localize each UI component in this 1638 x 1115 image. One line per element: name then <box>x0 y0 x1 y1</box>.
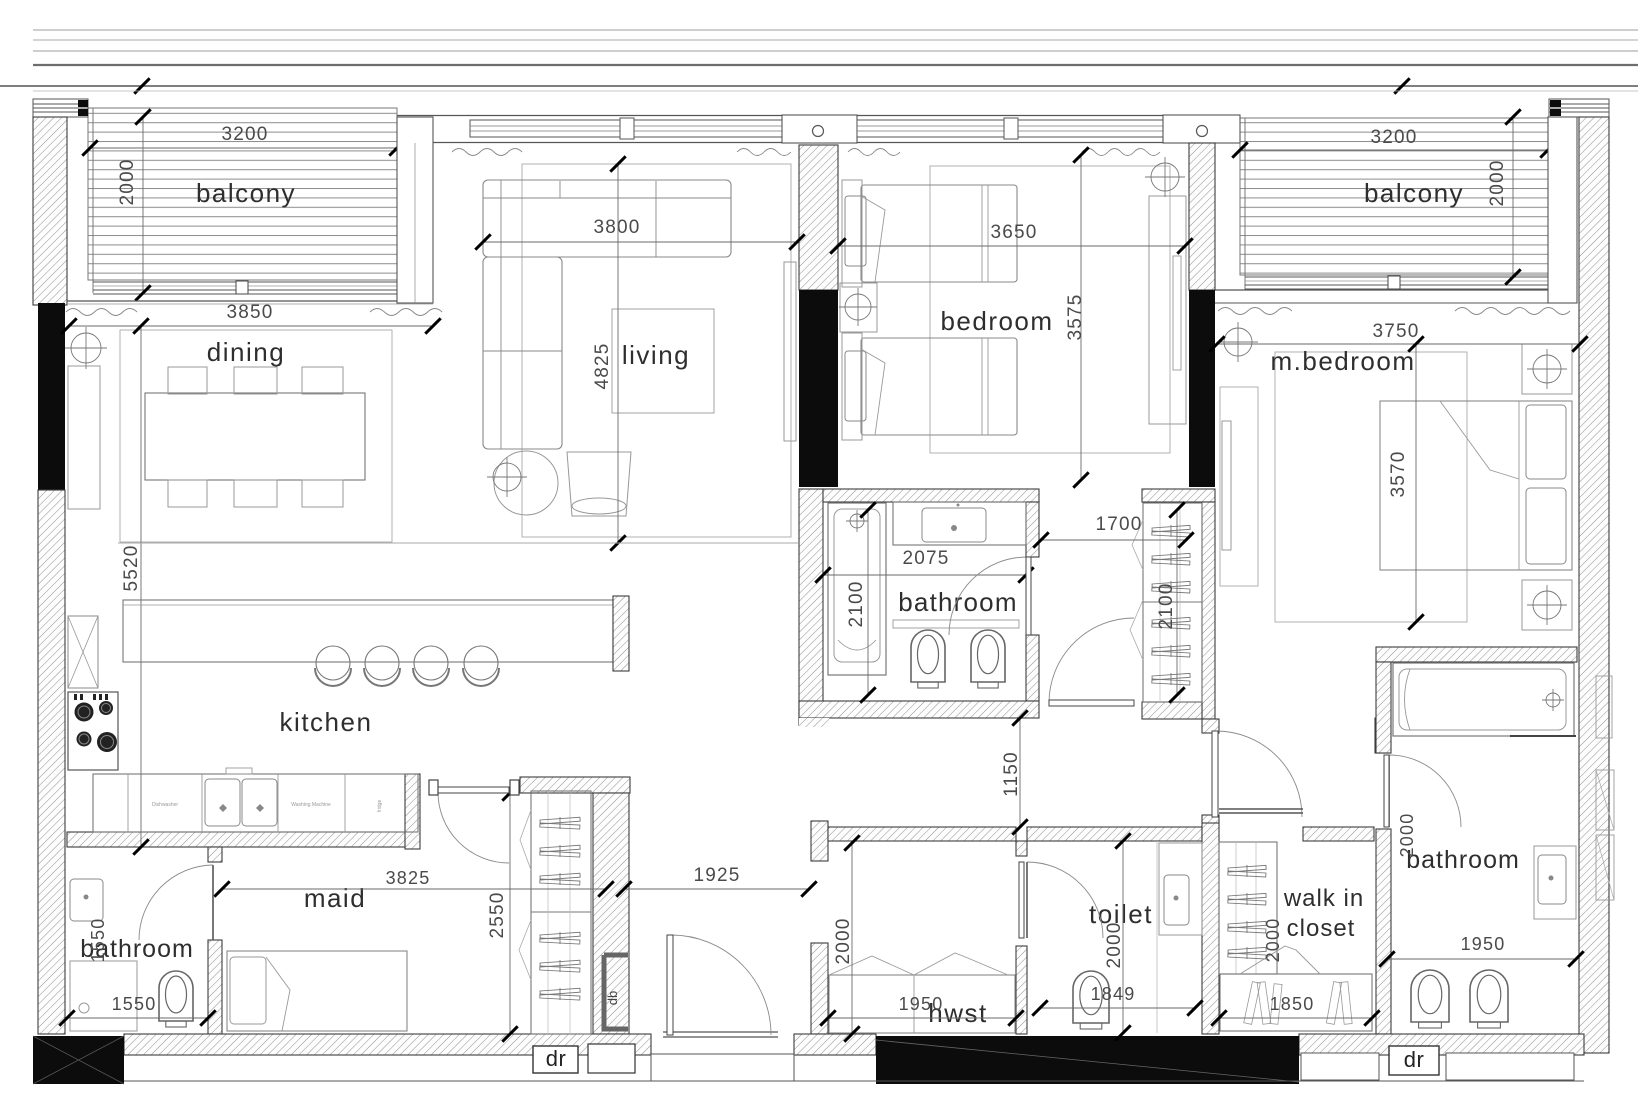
svg-text:3200: 3200 <box>221 124 268 145</box>
svg-text:3575: 3575 <box>1065 293 1086 340</box>
svg-text:1550: 1550 <box>88 918 108 963</box>
svg-text:bedroom: bedroom <box>940 306 1053 336</box>
svg-text:dr: dr <box>546 1046 567 1071</box>
svg-text:1950: 1950 <box>1461 934 1506 954</box>
svg-text:2000: 2000 <box>833 917 854 964</box>
svg-text:4825: 4825 <box>592 342 613 389</box>
svg-text:1950: 1950 <box>899 994 944 1014</box>
svg-text:3800: 3800 <box>593 217 640 238</box>
svg-text:3650: 3650 <box>990 222 1037 243</box>
svg-text:closet: closet <box>1287 915 1356 942</box>
svg-text:2000: 2000 <box>1263 918 1283 963</box>
svg-text:2000: 2000 <box>1104 921 1125 968</box>
svg-text:kitchen: kitchen <box>280 707 373 737</box>
svg-text:2100: 2100 <box>1156 582 1177 629</box>
svg-text:3825: 3825 <box>386 868 431 888</box>
svg-text:3750: 3750 <box>1372 321 1419 342</box>
svg-text:1849: 1849 <box>1091 984 1136 1004</box>
svg-text:fridge: fridge <box>377 800 383 813</box>
svg-text:2000: 2000 <box>1397 813 1417 858</box>
svg-text:2000: 2000 <box>117 158 138 205</box>
svg-text:5520: 5520 <box>121 544 142 591</box>
svg-text:db: db <box>605 991 620 1005</box>
svg-text:balcony: balcony <box>196 178 296 208</box>
svg-text:bathroom: bathroom <box>1406 846 1520 874</box>
svg-text:1150: 1150 <box>1001 751 1022 797</box>
svg-text:1925: 1925 <box>693 865 740 886</box>
svg-text:balcony: balcony <box>1364 178 1464 208</box>
svg-text:living: living <box>622 340 690 370</box>
svg-text:maid: maid <box>304 883 366 913</box>
svg-text:Dishwasher: Dishwasher <box>152 802 178 808</box>
svg-text:walk in: walk in <box>1283 885 1364 912</box>
svg-text:Washing Machine: Washing Machine <box>291 802 331 808</box>
svg-text:1550: 1550 <box>112 994 157 1014</box>
svg-text:2075: 2075 <box>902 548 949 569</box>
svg-text:3570: 3570 <box>1388 450 1409 497</box>
svg-text:1700: 1700 <box>1095 514 1142 535</box>
svg-text:2550: 2550 <box>487 891 508 938</box>
svg-text:3200: 3200 <box>1370 127 1417 148</box>
svg-text:dining: dining <box>207 337 285 367</box>
svg-text:dr: dr <box>1404 1047 1425 1072</box>
svg-text:2000: 2000 <box>1487 159 1508 206</box>
svg-text:bathroom: bathroom <box>898 587 1017 617</box>
svg-text:2100: 2100 <box>846 580 867 627</box>
svg-text:m.bedroom: m.bedroom <box>1271 346 1416 376</box>
svg-text:3850: 3850 <box>226 302 273 323</box>
svg-text:1850: 1850 <box>1270 994 1315 1014</box>
